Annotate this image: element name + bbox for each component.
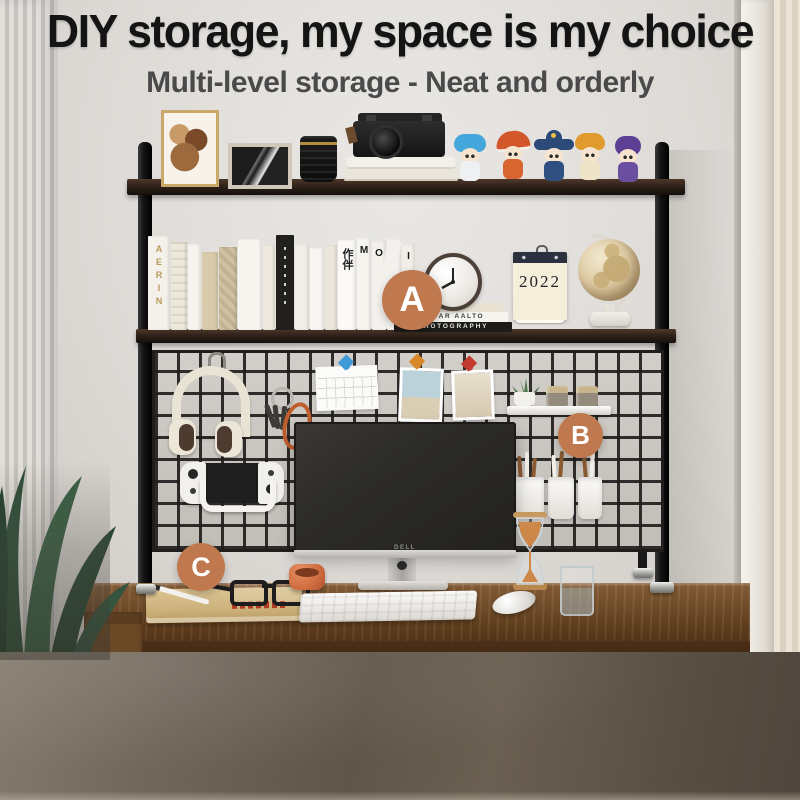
monitor-bezel — [294, 550, 516, 558]
figurine-wizard — [536, 133, 572, 183]
art-frame — [161, 110, 219, 187]
switch-wire-holder — [200, 480, 276, 512]
succulent-pot — [514, 392, 535, 406]
book-spine — [219, 247, 237, 330]
book-spine — [295, 244, 309, 330]
headphone-earcup-right — [215, 421, 242, 457]
book-spine-aerin: AERIN — [148, 236, 170, 330]
label-a-badge: A — [382, 270, 442, 330]
left-shadow — [0, 460, 110, 660]
grid-wall-shelf — [507, 406, 611, 415]
rack-wall-shadow — [662, 150, 732, 610]
clipped-photo — [398, 367, 444, 423]
globe — [578, 239, 640, 301]
headline: DIY storage, my space is my choice — [12, 4, 788, 58]
rack-foot — [650, 582, 674, 593]
subheadline: Multi-level storage - Neat and orderly — [0, 66, 800, 100]
book-row: AERIN 作伴 M O T I — [148, 232, 374, 330]
figurine-blue — [452, 133, 488, 183]
orange-tray — [289, 564, 325, 590]
features-band: 1 Partition Storage Place books, photo a… — [0, 652, 800, 800]
book-spine-letter: M — [357, 245, 371, 256]
glasses-bridge — [262, 584, 272, 588]
globe-base — [590, 312, 630, 326]
book-under-camera — [344, 169, 458, 181]
keyboard — [299, 590, 478, 622]
calendar-year: 2022 — [513, 272, 567, 292]
clipped-photo — [451, 369, 495, 420]
book-spine — [188, 244, 201, 330]
book-spine-letter: I — [402, 251, 415, 262]
book-spine-text: AERIN — [154, 244, 164, 309]
book-spine — [171, 242, 187, 330]
camera-lens — [369, 125, 403, 159]
band-floor-strip — [0, 791, 800, 800]
desk-calendar: 2022 — [513, 252, 567, 320]
book-spine-moti-m: M — [357, 238, 371, 330]
monitor-stand — [388, 558, 416, 583]
book-spine — [238, 239, 262, 330]
product-poster: DIY storage, my space is my choice Multi… — [0, 0, 800, 800]
book-spine-text: 作伴 — [339, 248, 355, 270]
headphone-earcup-left — [169, 419, 196, 455]
storage-jar — [546, 386, 568, 407]
monitor-base — [358, 581, 448, 590]
photo-frame — [228, 143, 292, 189]
book-spine — [325, 245, 337, 330]
storage-jar — [576, 386, 598, 407]
book-spine-black — [276, 235, 294, 330]
figurine-purple — [610, 134, 646, 184]
pen — [525, 452, 529, 480]
pen-cup — [548, 477, 574, 519]
pen-cup — [578, 477, 602, 519]
figurine-mushroom — [572, 132, 608, 182]
label-c-badge: C — [177, 543, 225, 591]
monitor: DELL — [294, 422, 516, 552]
hourglass — [512, 512, 548, 595]
book-spine — [310, 248, 324, 330]
figurine-orange-hat — [495, 131, 531, 181]
book-spine — [263, 245, 275, 330]
camera-lens-item — [300, 136, 337, 182]
water-glass — [560, 566, 594, 616]
book-spine-cjk: 作伴 — [338, 240, 356, 330]
label-b-badge: B — [558, 413, 603, 458]
rack-foot — [633, 568, 653, 578]
book-spine — [202, 252, 218, 330]
clipped-calendar-sheet — [315, 365, 378, 411]
book-under-camera — [347, 157, 455, 169]
